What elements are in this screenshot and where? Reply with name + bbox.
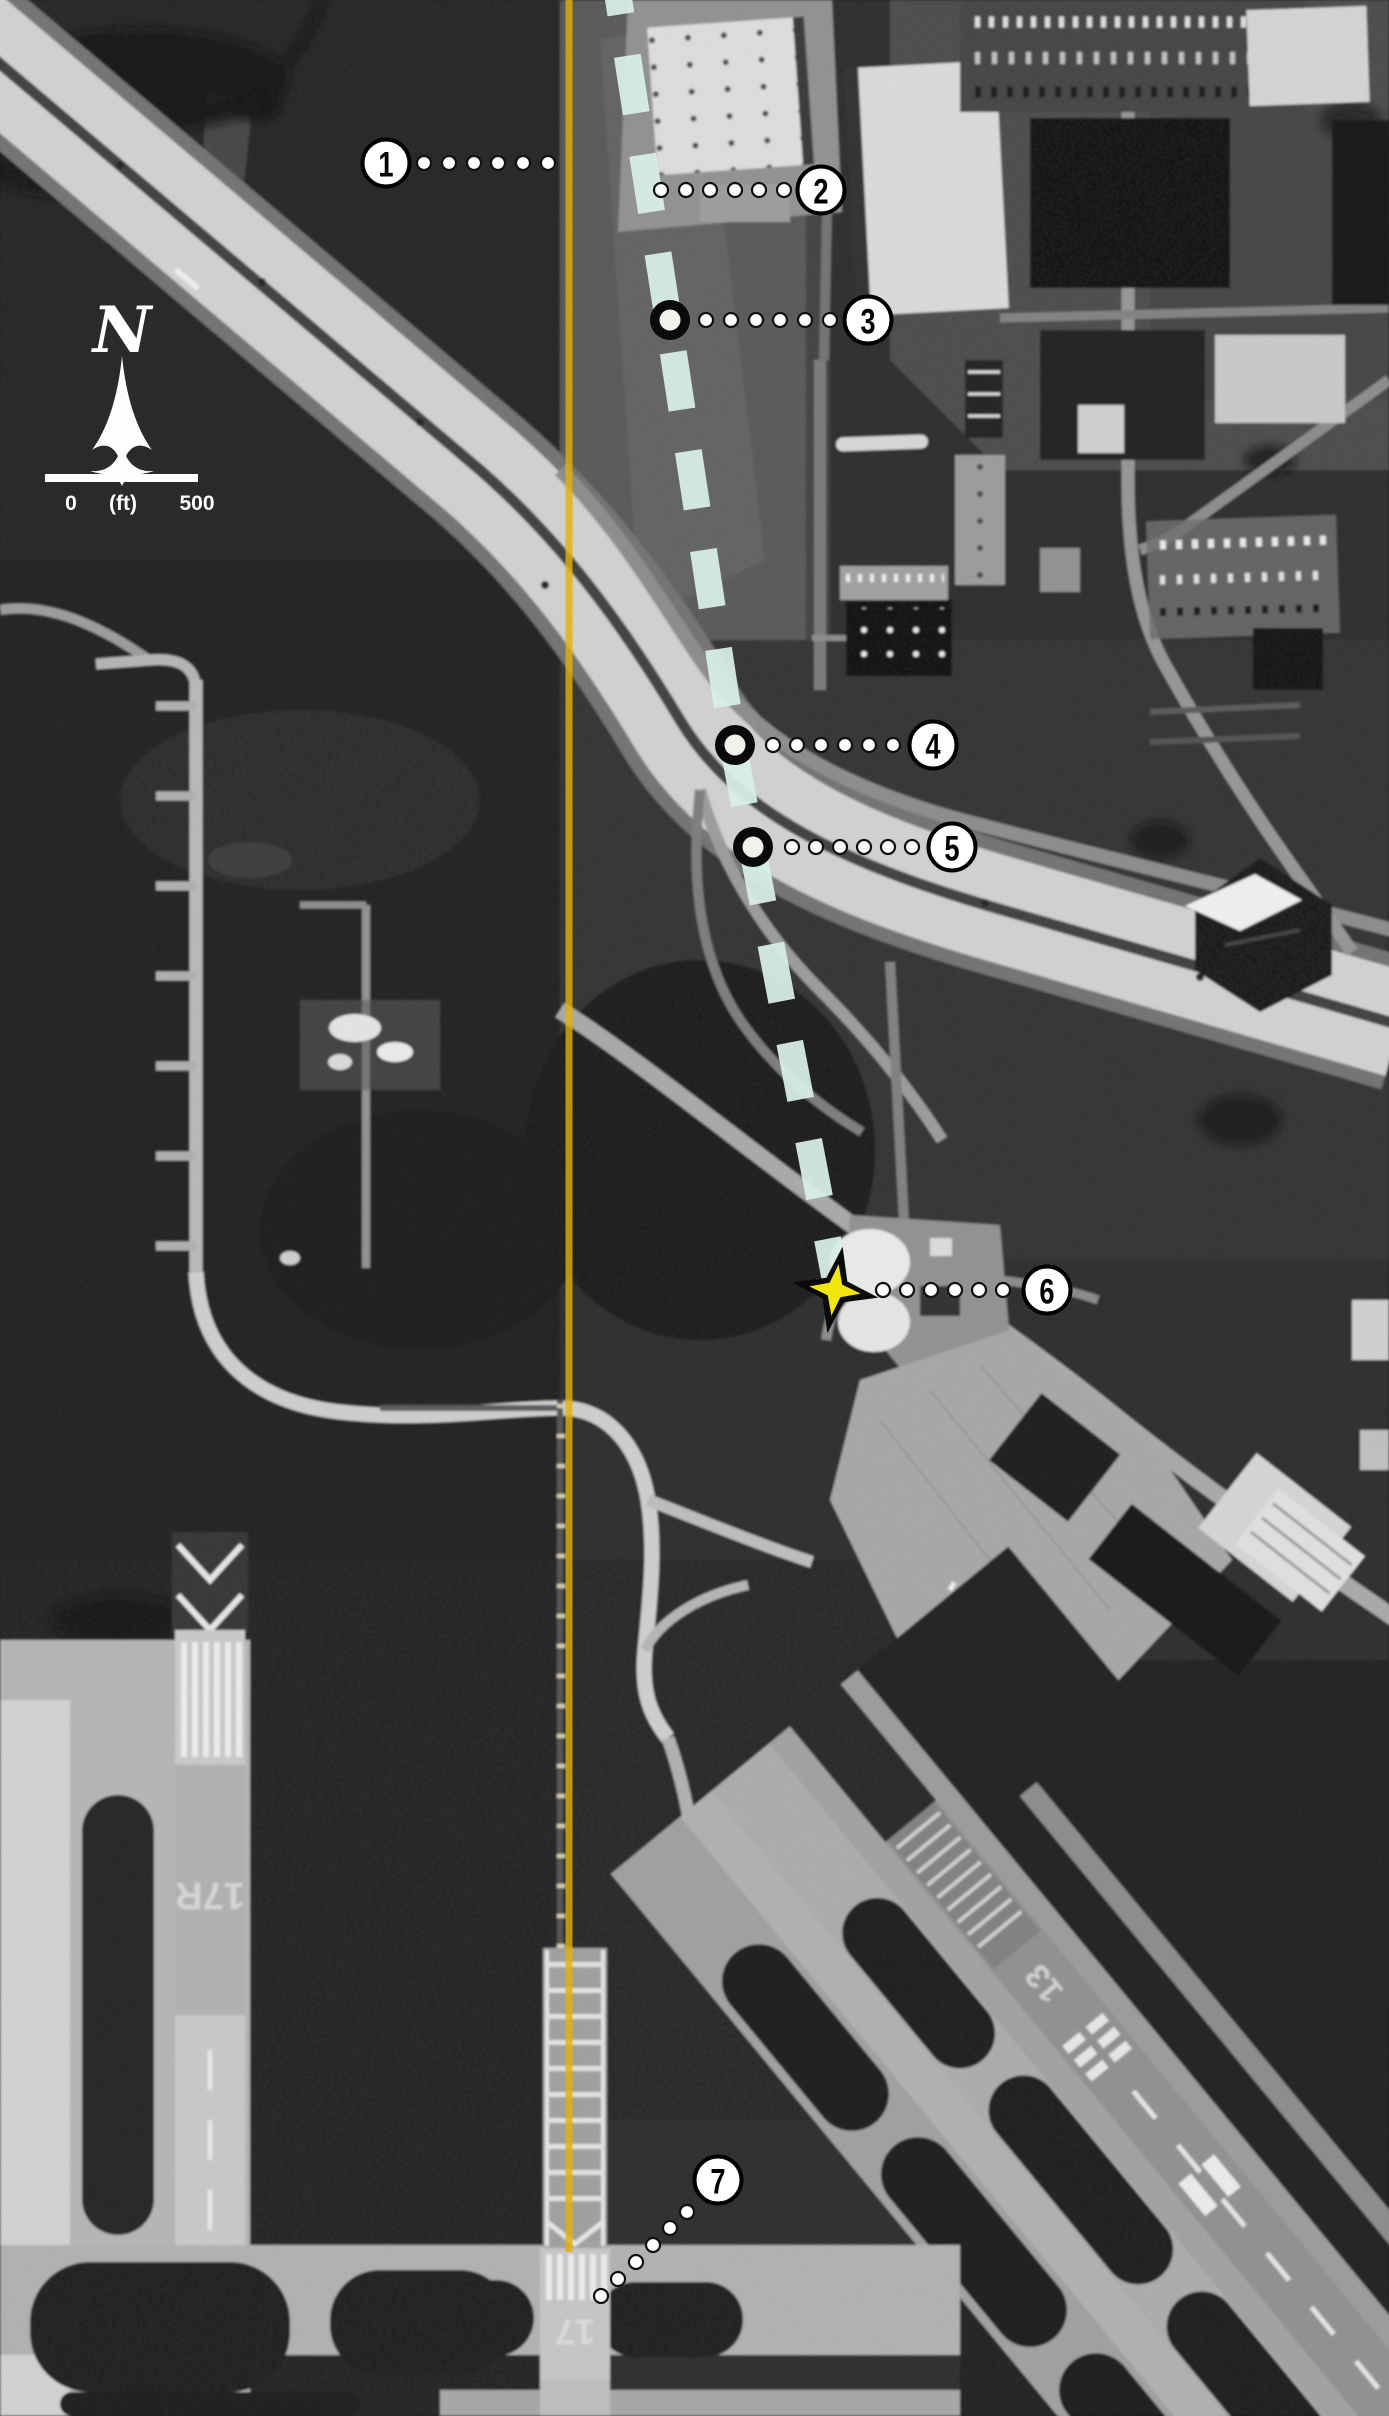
path-point-5 xyxy=(733,827,773,867)
marker-6: 6 xyxy=(1024,1267,1071,1314)
marker-label: 6 xyxy=(1039,1272,1054,1311)
marker-label: 7 xyxy=(710,2162,725,2201)
marker-label: 2 xyxy=(813,172,828,211)
runway-centerline-extension-line xyxy=(566,0,573,2252)
marker-4: 4 xyxy=(910,722,957,769)
path-point-4 xyxy=(715,725,755,765)
scale-bar: 0 (ft) 500 xyxy=(45,474,215,515)
compass-letter: N xyxy=(91,293,154,368)
photo-grain xyxy=(0,0,1389,2416)
marker-label: 3 xyxy=(860,302,875,341)
marker-label: 4 xyxy=(925,727,941,766)
path-point-3 xyxy=(650,300,690,340)
marker-1: 1 xyxy=(363,140,410,187)
scale-start-label: 0 xyxy=(65,492,77,515)
marker-2: 2 xyxy=(798,167,845,214)
aerial-photo-layer: 13 xyxy=(0,0,1389,2416)
marker-5: 5 xyxy=(929,824,976,871)
marker-label: 5 xyxy=(944,829,959,868)
marker-3: 3 xyxy=(845,297,892,344)
marker-7: 7 xyxy=(695,2157,742,2204)
scale-bar-line xyxy=(45,474,198,482)
marker-label: 1 xyxy=(378,145,393,184)
map-canvas: 13 xyxy=(0,0,1389,2416)
scale-end-label: 500 xyxy=(179,492,214,515)
aerial-map-figure: 13 xyxy=(0,0,1389,2416)
scale-unit-label: (ft) xyxy=(109,492,137,515)
